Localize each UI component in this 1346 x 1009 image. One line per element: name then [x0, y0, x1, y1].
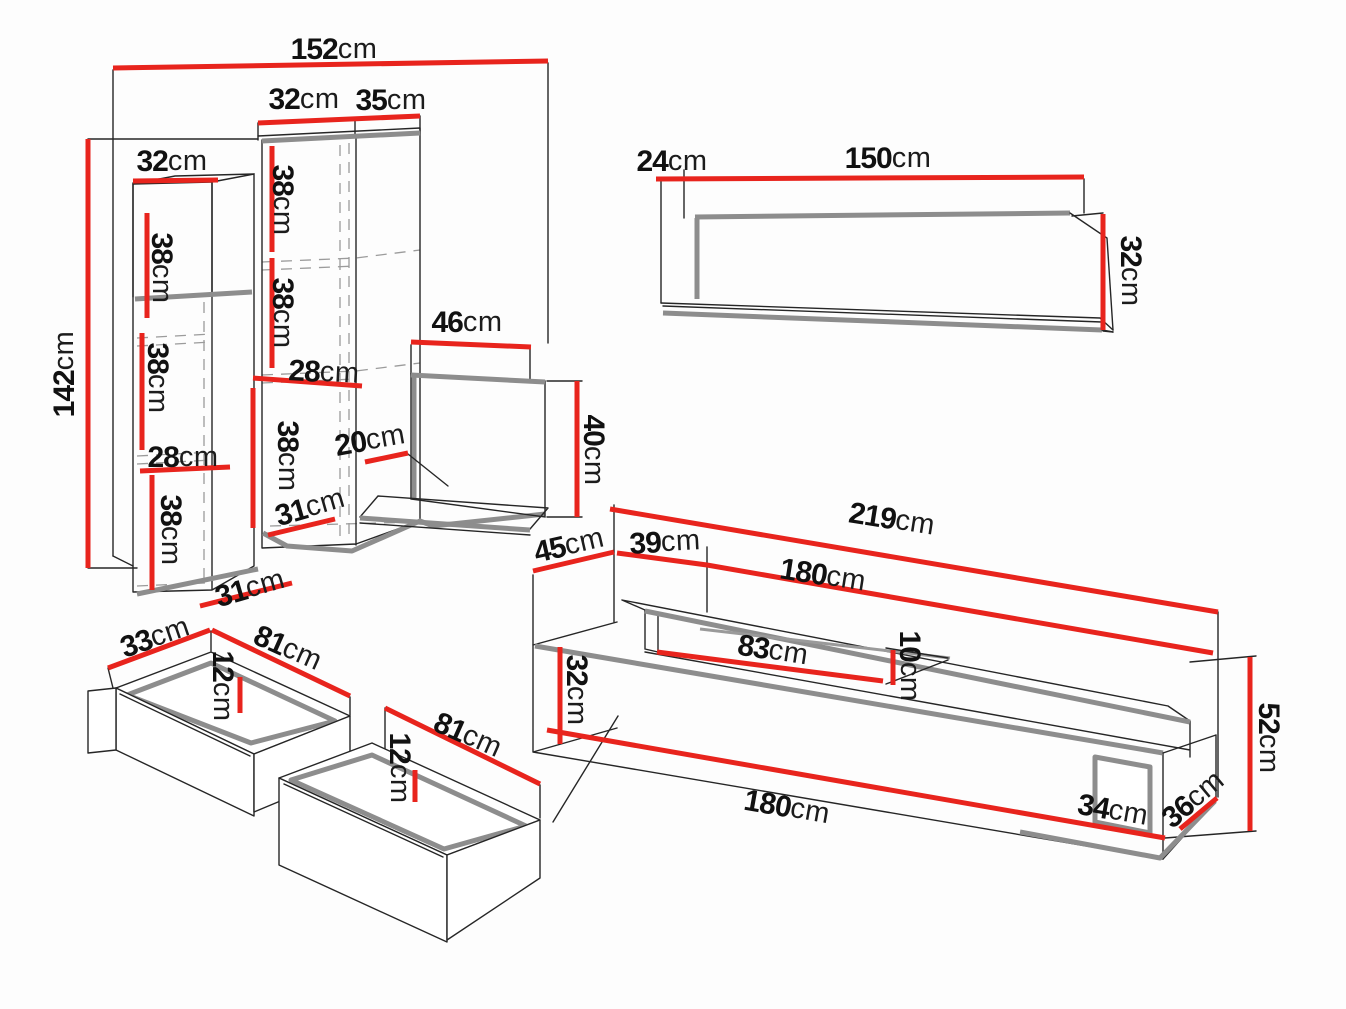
dim-label-drawer2-width: 81cm	[429, 705, 507, 764]
dim-label-drawer2-height: 12cm	[384, 732, 417, 803]
wall-shelf-drawing	[656, 170, 1113, 332]
dim-label-tv-stand-top-depth: 39cm	[629, 524, 702, 561]
dim-label-wall-shelf-width: 150cm	[845, 142, 932, 175]
dim-label-wall-unit-left-shelf-3: 38cm	[155, 494, 188, 565]
dim-label-wall-unit-top-shelf-width: 46cm	[431, 306, 502, 339]
dimension-labels: 152cm 32cm 35cm 32cm 38cm 38cm 38cm 38cm…	[48, 33, 1286, 835]
dim-label-tv-stand-niche-height: 10cm	[894, 630, 927, 701]
dim-label-tv-stand-total-height: 52cm	[1253, 702, 1286, 773]
dim-label-wall-unit-left-shelf-1: 38cm	[146, 232, 179, 303]
dim-label-wall-unit-total-width: 152cm	[291, 33, 378, 66]
dim-label-wall-unit-panel-height: 40cm	[578, 414, 611, 485]
wall-shelf-outline	[661, 213, 1113, 332]
wall-shelf-dimension-lines	[656, 177, 1103, 330]
dim-label-wall-unit-top-left-width: 32cm	[268, 83, 339, 116]
dim-label-wall-unit-mid-shelf-1: 38cm	[267, 164, 300, 235]
dim-label-wall-shelf-height: 32cm	[1115, 235, 1148, 306]
dim-label-tv-stand-front-width: 180cm	[741, 783, 832, 831]
dim-label-wall-shelf-depth: 24cm	[636, 145, 707, 178]
diagram-canvas: 152cm 32cm 35cm 32cm 38cm 38cm 38cm 38cm…	[0, 0, 1346, 1009]
dim-label-tv-stand-total-width: 219cm	[847, 496, 938, 542]
dim-label-tv-stand-front-height: 32cm	[561, 654, 594, 725]
dim-label-drawer1-height: 12cm	[207, 650, 240, 721]
dim-label-wall-unit-left-inner-width: 28cm	[147, 441, 218, 474]
dim-label-drawer1-depth: 33cm	[116, 610, 194, 664]
dim-label-wall-unit-mid-shelf-2: 38cm	[267, 277, 300, 348]
dim-label-wall-unit-mid-shelf-3: 38cm	[272, 420, 305, 491]
dim-label-wall-unit-total-height: 142cm	[48, 331, 81, 418]
dim-label-wall-unit-left-shelf-2: 38cm	[142, 342, 175, 413]
dim-label-wall-unit-left-top-width: 32cm	[136, 145, 207, 178]
dim-label-wall-unit-mid-inner-width: 28cm	[288, 354, 361, 391]
dim-label-wall-unit-top-right-width: 35cm	[355, 84, 426, 117]
furniture-dimension-diagram: 152cm 32cm 35cm 32cm 38cm 38cm 38cm 38cm…	[0, 0, 1346, 1009]
dim-label-tv-stand-top-width: 180cm	[778, 552, 869, 598]
